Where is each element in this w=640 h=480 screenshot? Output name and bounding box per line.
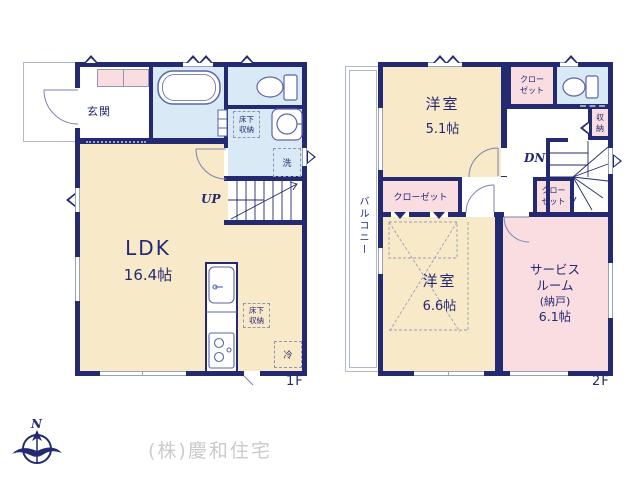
service-room-line: 6.1帖 — [539, 309, 571, 325]
toilet-room-1f — [228, 67, 302, 105]
wall-segment — [495, 216, 503, 371]
compass-icon — [12, 430, 62, 463]
door-opening — [466, 212, 494, 217]
storage-char: 収 — [596, 113, 604, 123]
closet-label: クロー — [520, 75, 544, 85]
storage-door-icon — [580, 121, 589, 135]
toilet-sliding-door — [580, 105, 605, 107]
porch — [23, 62, 78, 142]
floor1-label: 1F — [286, 374, 304, 389]
compass-north-label: N — [31, 417, 42, 431]
service-room-line: サービス — [530, 262, 580, 278]
room-name: 洋室 — [422, 270, 456, 291]
company-name: (株)慶和住宅 — [148, 436, 272, 463]
door-opening — [504, 212, 529, 217]
stairs-up-label: UP — [201, 192, 221, 206]
vent-icon — [186, 55, 200, 63]
window-tick — [448, 371, 449, 376]
bathroom — [153, 67, 224, 140]
vent-icon — [433, 55, 447, 63]
floor2-label: 2F — [592, 374, 610, 389]
wall-segment — [553, 62, 557, 108]
room-name: 洋室 — [425, 93, 459, 114]
underfloor-storage-label: 床下 — [239, 115, 254, 124]
washer-label: 洗 — [282, 156, 291, 169]
wall-segment — [570, 177, 574, 216]
wall-segment — [149, 62, 153, 140]
window-marker — [75, 257, 80, 301]
window-tick — [142, 371, 143, 376]
bedroom-large-label: 洋室 6.6帖 — [397, 270, 482, 314]
underfloor-storage-ldk: 床下 収納 — [243, 303, 270, 328]
room-size: 5.1帖 — [426, 118, 460, 137]
closet-top-label: クロー ゼット — [511, 67, 553, 104]
ldk-name: LDK — [125, 236, 171, 260]
underfloor-storage-label: 床下 — [249, 306, 264, 315]
window-marker — [100, 371, 186, 376]
shutter-icon — [66, 193, 75, 207]
shutter-icon — [613, 154, 622, 168]
toilet-room-2f — [557, 67, 608, 104]
stairs-1f — [228, 181, 302, 220]
window-marker — [378, 108, 383, 170]
window-marker — [414, 371, 484, 376]
entrance-step-line — [86, 141, 146, 143]
door-opening — [501, 148, 507, 176]
entrance-label: 玄関 — [87, 103, 111, 119]
closet-mid-label: クロー ゼット — [537, 181, 570, 212]
room-size: 6.6帖 — [423, 295, 457, 314]
storage-label: 収 納 — [592, 109, 608, 138]
window-marker — [378, 248, 383, 274]
stairs-down-label: DN — [524, 151, 545, 165]
underfloor-storage-label: 収納 — [239, 125, 254, 134]
kitchen-counter — [205, 262, 238, 371]
ldk-size: 16.4帖 — [124, 264, 172, 285]
floorplan-canvas: 床下 収納 洗 床下 収納 冷 玄関 LDK 16.4帖 UP 1F バルコニー — [0, 0, 640, 480]
door-opening — [75, 88, 80, 128]
fridge-label: 冷 — [283, 348, 292, 361]
vent-icon — [240, 55, 254, 63]
closet-door-icon — [394, 212, 406, 219]
closet-label: ゼット — [542, 197, 566, 207]
door-opening — [224, 148, 228, 176]
bedroom-small-label: 洋室 5.1帖 — [400, 93, 485, 137]
window-marker — [608, 263, 613, 318]
washer-space: 洗 — [273, 148, 301, 177]
storage-char: 納 — [596, 124, 604, 134]
closet-label: クローゼット — [393, 190, 447, 203]
vent-icon — [199, 55, 213, 63]
balcony-label: バルコニー — [355, 196, 370, 256]
vent-icon — [564, 55, 578, 63]
vent-icon — [84, 55, 98, 63]
shoe-cabinet — [97, 69, 149, 87]
window-marker — [510, 371, 568, 376]
closet-label: クロー — [542, 186, 566, 196]
closet-door-icon — [433, 212, 445, 219]
closet-left-label: クローゼット — [383, 181, 458, 212]
fridge-space: 冷 — [274, 341, 302, 368]
shutter-icon — [307, 150, 316, 164]
service-room-label: サービス ルーム (納戸) 6.1帖 — [510, 262, 600, 325]
ldk-label: LDK 16.4帖 — [98, 236, 198, 285]
cabinet-divider — [123, 70, 124, 86]
wall-segment — [224, 220, 307, 225]
closet-label: ゼット — [520, 86, 544, 96]
vent-icon — [446, 55, 460, 63]
underfloor-storage-label: 収納 — [249, 316, 264, 325]
underfloor-storage-washroom: 床下 収納 — [233, 111, 260, 138]
service-room-line: (納戸) — [540, 295, 571, 309]
wall-segment — [458, 177, 462, 216]
door-opening — [244, 371, 260, 376]
window-marker — [75, 188, 80, 212]
wall-segment — [228, 105, 307, 109]
service-room-line: ルーム — [536, 278, 573, 294]
